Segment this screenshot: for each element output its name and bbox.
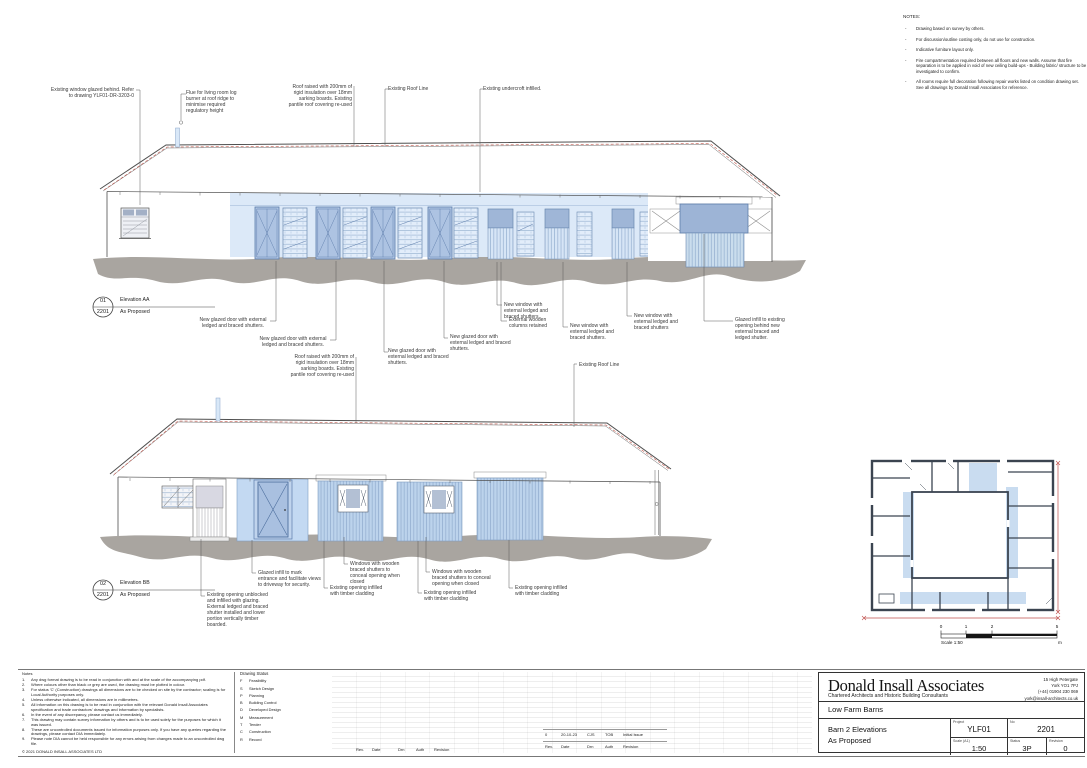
status-label: Measurement (249, 716, 273, 720)
annotation-label: New window with external ledged and brac… (634, 313, 690, 331)
rev-value: TOB (605, 732, 623, 737)
status-label: Planning (249, 694, 264, 698)
annotation-label: Existing opening infilled with timber cl… (424, 590, 480, 602)
annotation-label: Existing undercroft infilled. (483, 86, 553, 92)
field-value: 0 (1047, 744, 1084, 753)
revision-line (543, 741, 667, 742)
marker-bb-title: Elevation BB (120, 580, 150, 586)
rev-header: Revision (623, 744, 669, 749)
field-revision: Revision 0 (1047, 738, 1084, 756)
elevation-aa-drawing (93, 128, 806, 285)
drawing-status-block: Drawing Status FFeasibility SSketch Desi… (240, 672, 332, 745)
drawing-title: Barn 2 Elevations As Proposed (828, 724, 887, 747)
annotation-label: Windows with wooden braced shutters to c… (432, 569, 492, 587)
elevation-bb-drawing (100, 398, 712, 562)
annotation-label: New window with external ledged and brac… (570, 323, 626, 341)
revision-entry-row: 0 20-10-23 CJS TOB Initial Issue (545, 732, 669, 737)
status-label: Feasibility (249, 679, 266, 683)
note-item: All rooms require full decoration follow… (903, 79, 1087, 90)
drawing-status-title: Drawing Status (240, 672, 332, 676)
status-code: F (240, 679, 249, 683)
field-label: Scale (A1) (953, 739, 970, 743)
status-label: Building Control (249, 701, 276, 705)
marker-bb-subtitle: As Proposed (120, 592, 150, 598)
rev-value: CJS (587, 732, 605, 737)
title-block-bottom: Barn 2 Elevations As Proposed Project YL… (819, 719, 1084, 755)
field-value: 3P (1008, 744, 1046, 753)
status-label: Construction (249, 730, 271, 734)
drawing-title-line: As Proposed (828, 735, 887, 746)
title-block: Donald Insall Associates Chartered Archi… (818, 672, 1085, 753)
rev-header: Rev. (545, 744, 561, 749)
firm-subtitle: Chartered Architects and Historic Buildi… (828, 693, 948, 699)
rev-header: Date (561, 744, 587, 749)
scale-tick: 5 (1052, 624, 1062, 629)
field-label: Project (953, 720, 964, 724)
scale-tick: 1 (961, 624, 971, 629)
footer-bottom-rule (18, 756, 1085, 757)
status-code: T (240, 723, 249, 727)
project-name: Low Farm Barns (819, 702, 1084, 719)
status-label: Record (249, 738, 262, 742)
field-label: No (1010, 720, 1015, 724)
annotation-label: Existing Roof Line (388, 86, 448, 92)
marker-aa-number: 01 (93, 298, 113, 304)
annotation-label: New glazed door with external ledged and… (256, 336, 330, 348)
marker-aa-subtitle: As Proposed (120, 309, 150, 315)
annotation-label: New glazed door with external ledged and… (388, 348, 450, 366)
status-label: Developed Design (249, 708, 281, 712)
address-line: york@insall-architects.co.uk (1024, 696, 1078, 702)
annotation-label: Existing window glazed behind. Refer to … (46, 87, 134, 99)
annotation-label: Existing Roof Line (579, 362, 639, 368)
note-item: Indicative furniture layout only. (903, 47, 1087, 53)
annotation-label: Roof raised with 200mm of rigid insulati… (288, 84, 352, 108)
notes-panel: NOTES: Drawing based on survey by others… (903, 14, 1087, 96)
copyright: © 2021 DONALD INSALL ASSOCIATES LTD (22, 749, 102, 754)
status-code: S (240, 687, 249, 691)
rev-value: 20-10-23 (561, 732, 587, 737)
field-label: Revision (1049, 739, 1063, 743)
annotation-label: Roof raised with 200mm of rigid insulati… (290, 354, 354, 378)
rev-header: Auth (416, 747, 434, 752)
field-value: 2201 (1008, 725, 1084, 734)
marker-bb-sheet: 2201 (93, 592, 113, 598)
annotation-label: Glazed infill to mark entrance and facil… (258, 570, 322, 588)
rev-header: Revision (434, 747, 480, 752)
annotation-label: Windows with wooden braced shutters to c… (350, 561, 408, 585)
title-block-header: Donald Insall Associates Chartered Archi… (819, 673, 1084, 702)
title-block-fields: Project YLF01 No 2201 Scale (A1) 1:50 St… (950, 719, 1084, 755)
annotation-label: Glazed infill to existing opening behind… (735, 317, 795, 341)
drawing-sheet: { "notes_panel": { "title": "NOTES:", "i… (0, 0, 1087, 768)
marker-aa-title: Elevation AA (120, 297, 149, 303)
marker-bb-number: 02 (93, 581, 113, 587)
note-item: Drawing based on survey by others. (903, 26, 1087, 32)
annotation-label: Existing opening unblocked and infilled … (207, 592, 271, 628)
footer-notes-title: Notes (22, 672, 228, 677)
annotation-label: Flue for living room log burner at roof … (186, 90, 248, 114)
scale-bar-unit: m (1058, 640, 1062, 645)
scale-tick: 2 (987, 624, 997, 629)
status-code: P (240, 694, 249, 698)
annotation-label: New glazed door with external ledged and… (450, 334, 512, 352)
revision-header-row: Rev. Date Drn Auth Revision (356, 747, 480, 752)
drawing-title-line: Barn 2 Elevations (828, 724, 887, 735)
rev-header: Drn (398, 747, 416, 752)
field-status: Status 3P (1008, 738, 1047, 756)
scale-tick: 0 (936, 624, 946, 629)
annotation-label: New glazed door with external ledged and… (196, 317, 270, 329)
status-code: B (240, 701, 249, 705)
rev-header: Date (372, 747, 398, 752)
rev-header: Auth (605, 744, 623, 749)
annotation-label: External wooden columns retained (509, 317, 553, 329)
footer-note-item: This drawing may contain survey informat… (22, 718, 228, 727)
notes-title: NOTES: (903, 14, 1087, 20)
field-label: Status (1010, 739, 1020, 743)
status-label: Sketch Design (249, 687, 274, 691)
scale-bar (941, 631, 1057, 639)
status-code: C (240, 730, 249, 734)
rev-header: Drn (587, 744, 605, 749)
field-project: Project YLF01 (951, 719, 1008, 737)
footer-note-item: All information on this drawing is to be… (22, 703, 228, 712)
marker-aa-sheet: 2201 (93, 309, 113, 315)
rev-header: Rev. (356, 747, 372, 752)
status-code: M (240, 716, 249, 720)
note-item: Fire compartmentation required between a… (903, 58, 1087, 75)
floor-plan (862, 461, 1060, 620)
footer-notes: Notes Any dwg format drawing is to be re… (22, 672, 228, 746)
annotation-label: Existing opening infilled with timber cl… (515, 585, 571, 597)
field-scale: Scale (A1) 1:50 (951, 738, 1008, 756)
footer-separator (234, 672, 235, 753)
field-number: No 2201 (1008, 719, 1084, 737)
scale-bar-label: Scale 1:50 (941, 640, 963, 645)
status-label: Tender (249, 723, 261, 727)
footer-note-item: Please note DIA cannot be held responsib… (22, 737, 228, 746)
field-value: YLF01 (951, 725, 1007, 734)
rev-value: Initial Issue (623, 732, 669, 737)
annotation-label: Existing opening infilled with timber cl… (330, 585, 386, 597)
note-item: For discussion/outline costing only, do … (903, 37, 1087, 43)
rev-value: 0 (545, 732, 561, 737)
status-code: R (240, 738, 249, 742)
status-code: D (240, 708, 249, 712)
revision-line (543, 729, 667, 730)
revision-header-row: Rev. Date Drn Auth Revision (545, 744, 669, 749)
firm-address: 15 High Petergate York YO1 7PJ (+44) 019… (1024, 677, 1078, 702)
footer-top-rule (18, 669, 1085, 670)
field-value: 1:50 (951, 744, 1007, 753)
sheet-linework (0, 0, 1087, 768)
